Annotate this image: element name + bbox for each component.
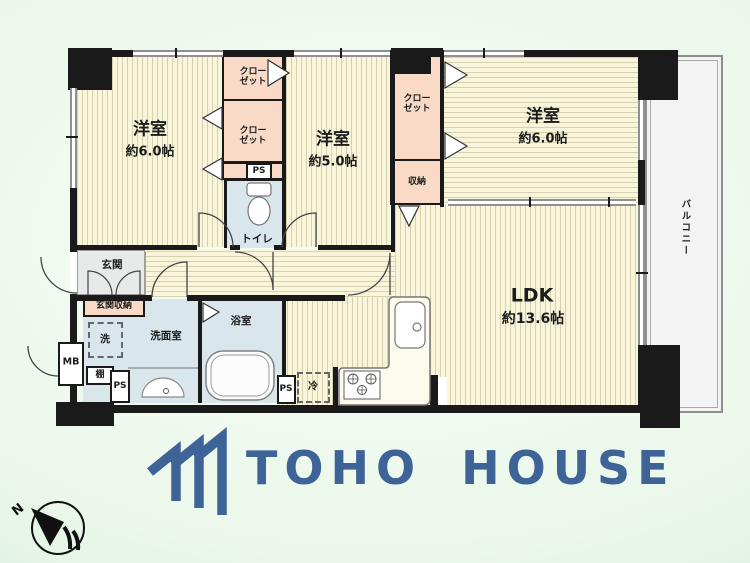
bathroom-label: 浴室	[231, 316, 252, 328]
door-arc-washroom	[152, 262, 187, 297]
door-arc-ldk	[348, 253, 390, 295]
closet-1-label: クロー ゼット	[239, 67, 266, 87]
washer-label: 洗	[100, 334, 110, 345]
pipe-space-label-2: PS	[113, 381, 126, 391]
balcony-label: バルコニー	[679, 199, 690, 257]
ldk-size-label: 約13.6帖	[502, 312, 565, 328]
door-arc-meter-box	[28, 346, 58, 376]
room3-name-label: 洋室	[526, 107, 560, 126]
ldk-name-label: LDK	[511, 285, 554, 306]
meter-box-label: MB	[63, 358, 80, 369]
closet-door-marker	[268, 60, 289, 86]
closet-door-marker	[445, 62, 467, 88]
door-arc-entrance	[41, 257, 77, 293]
entrance-label: 玄関	[102, 260, 123, 272]
door-arc-entrance-storage-right	[116, 271, 140, 295]
storage-label: 収納	[408, 177, 426, 187]
logo-text: TOHO HOUSE	[246, 441, 676, 495]
closet-3-label: クロー ゼット	[403, 94, 430, 114]
toilet-tank	[247, 183, 271, 196]
pipe-space-label-1: PS	[252, 166, 265, 176]
entrance-storage-label: 玄関収納	[96, 301, 132, 311]
door-arc-room2	[282, 213, 316, 247]
room1-size-label: 約6.0帖	[125, 146, 174, 161]
logo-mark-ribbon	[150, 451, 176, 501]
door-arc-toilet	[235, 252, 273, 290]
floorplan-canvas: N 洋室 約6.0帖 洋室 約5.0帖 洋室 約6.0帖 LDK 約13.6帖 …	[0, 0, 750, 563]
storage-door-marker	[399, 206, 419, 226]
closet-door-marker	[203, 158, 222, 180]
washbasin	[142, 378, 184, 397]
bathroom-door-marker	[203, 303, 219, 322]
toilet-bowl	[248, 197, 270, 225]
door-arc-entrance-storage-left	[88, 271, 112, 295]
closet-door-marker	[203, 107, 222, 129]
fridge-label: 冷	[308, 381, 318, 392]
door-arc-room1	[199, 213, 233, 247]
bathtub	[206, 351, 274, 400]
pipe-space-label-3: PS	[279, 384, 292, 394]
washroom-label: 洗面室	[150, 331, 182, 343]
room3-size-label: 約6.0帖	[518, 133, 567, 148]
toilet-label: トイレ	[241, 234, 273, 246]
kitchen-faucet	[413, 323, 421, 331]
room2-name-label: 洋室	[316, 130, 350, 149]
compass-north-label: N	[9, 501, 27, 520]
closet-2-label: クロー ゼット	[239, 126, 266, 146]
shelf-label: 棚	[95, 370, 104, 380]
compass-stripe	[64, 527, 70, 549]
closet-door-marker	[445, 133, 467, 159]
room2-size-label: 約5.0帖	[308, 156, 357, 171]
room1-name-label: 洋室	[133, 120, 167, 139]
